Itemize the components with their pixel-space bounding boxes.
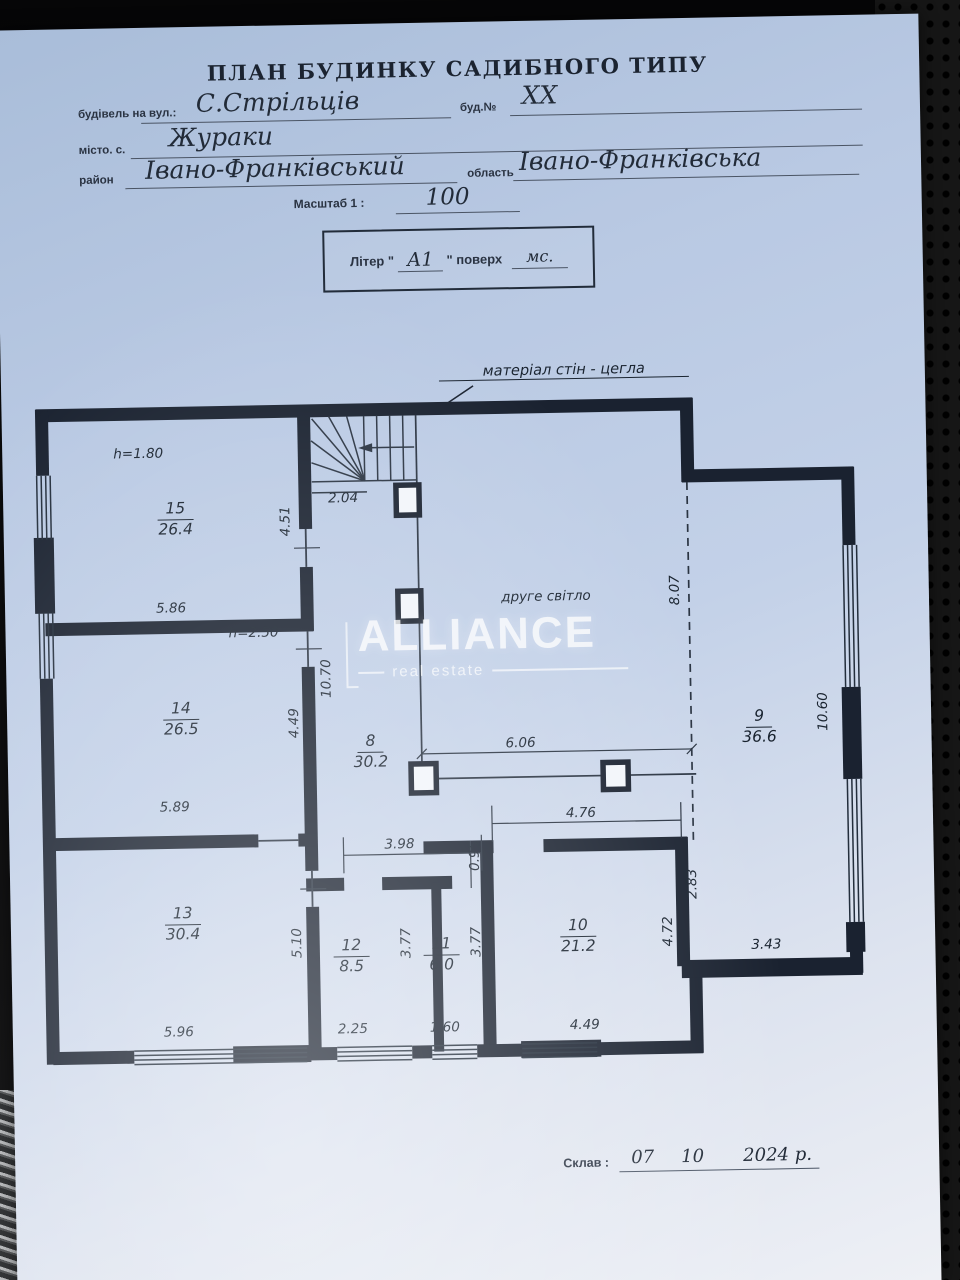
dimension-label: 5.89 xyxy=(160,799,190,816)
dimension-label: 10.60 xyxy=(815,692,832,731)
dimension-label: 5.96 xyxy=(164,1024,194,1041)
underline xyxy=(396,211,520,215)
room-label: 128.5 xyxy=(333,936,369,977)
dimension-label: 2.83 xyxy=(684,869,701,899)
dimension-label: друге світло xyxy=(501,588,591,606)
room-number: 13 xyxy=(165,904,201,926)
liter-value: А1 xyxy=(398,248,443,272)
dimension-label: h=2.50 xyxy=(228,624,278,641)
watermark-bracket xyxy=(345,622,358,688)
floor-plan: матеріал стін - цегла xyxy=(25,349,878,1070)
dimension-label: 2.04 xyxy=(328,490,358,507)
dimension-label: 4.76 xyxy=(566,805,596,822)
dimension-label: 10.70 xyxy=(318,659,335,698)
dimension-label: 3.77 xyxy=(468,927,485,957)
dimension-label: 4.72 xyxy=(660,916,677,946)
compiled-year: 2024 р. xyxy=(743,1144,812,1166)
underline xyxy=(141,117,451,124)
room-label: 1426.5 xyxy=(163,699,199,740)
dimension-label: 5.86 xyxy=(156,600,186,617)
page-title: ПЛАН БУДИНКУ САДИБНОГО ТИПУ xyxy=(0,48,919,90)
compiled-month: 10 xyxy=(681,1146,704,1167)
building-no-label: буд.№ xyxy=(460,101,497,114)
underline xyxy=(131,145,863,160)
compiled-label: Склав : xyxy=(563,1156,609,1171)
dimension-label: 6.06 xyxy=(505,735,535,752)
watermark-subtitle: real estate xyxy=(358,659,628,681)
compiled-day: 07 xyxy=(631,1147,654,1168)
liter-label: Літер " xyxy=(350,253,394,269)
plan-labels-layer: h=1.804.512.045.86h=2.5010.704.495.895.9… xyxy=(25,349,865,364)
room-number: 9 xyxy=(746,706,772,728)
room-number: 12 xyxy=(333,936,369,958)
room-area: 26.4 xyxy=(158,520,194,540)
dimension-label: 8.07 xyxy=(667,575,684,605)
room-number: 14 xyxy=(163,699,199,721)
dimension-label: 5.10 xyxy=(289,928,306,958)
room-label: 1330.4 xyxy=(165,904,201,945)
underline xyxy=(125,182,457,189)
underline xyxy=(619,1168,819,1173)
room-number: 11 xyxy=(423,934,459,956)
dimension-label: 3.77 xyxy=(398,928,415,958)
room-area: 36.6 xyxy=(742,728,777,748)
dimension-label: 2.25 xyxy=(338,1021,368,1038)
region-value: Івано-Франківська xyxy=(519,143,762,176)
underline xyxy=(510,109,862,117)
building-no-value: XX xyxy=(521,80,557,110)
room-label: 116.0 xyxy=(423,934,459,975)
liter-box: Літер " А1 " поверх мс. xyxy=(322,226,595,293)
room-number: 15 xyxy=(157,499,193,521)
district-value: Івано-Франківський xyxy=(145,151,405,185)
room-area: 30.2 xyxy=(354,753,389,773)
dimension-label: 4.51 xyxy=(277,506,294,536)
scale-label: Масштаб 1 : xyxy=(294,196,365,211)
dimension-label: 1.60 xyxy=(430,1019,460,1036)
wall-material-note: матеріал стін - цегла xyxy=(439,360,689,382)
photo-background: ПЛАН БУДИНКУ САДИБНОГО ТИПУ будівель на … xyxy=(0,0,960,1280)
underline xyxy=(513,174,859,182)
room-area: 6.0 xyxy=(424,956,460,976)
room-number: 10 xyxy=(560,916,596,938)
watermark-brand: ALLIANCE xyxy=(357,607,628,662)
dimension-label: 4.49 xyxy=(286,708,303,738)
dimension-label: 4.49 xyxy=(570,1017,600,1034)
city-value: Жураки xyxy=(168,121,273,152)
dimension-label: h=1.80 xyxy=(113,446,163,463)
room-area: 21.2 xyxy=(560,937,596,957)
room-label: 936.6 xyxy=(742,706,777,747)
region-label: область xyxy=(467,167,514,180)
scale-value: 100 xyxy=(425,184,469,211)
alliance-watermark: ALLIANCE real estate xyxy=(357,607,628,681)
liter-floor-value: мс. xyxy=(512,246,568,269)
city-label: місто. с. xyxy=(79,144,126,157)
dimension-label: 0.95 xyxy=(466,841,483,871)
district-label: район xyxy=(79,174,114,187)
room-label: 1021.2 xyxy=(560,916,596,957)
room-area: 8.5 xyxy=(334,957,370,977)
street-value: С.Стрільців xyxy=(196,86,360,118)
dimension-label: 3.98 xyxy=(384,836,414,853)
paper-sheet: ПЛАН БУДИНКУ САДИБНОГО ТИПУ будівель на … xyxy=(0,14,942,1280)
room-area: 30.4 xyxy=(165,925,201,945)
room-number: 8 xyxy=(357,732,383,754)
dimension-label: 3.43 xyxy=(751,936,781,953)
liter-floor-label: " поверх xyxy=(446,251,502,267)
floor-plan-drawing xyxy=(25,349,878,1070)
street-label: будівель на вул.: xyxy=(78,107,177,121)
room-area: 26.5 xyxy=(163,720,199,740)
room-label: 830.2 xyxy=(353,731,388,772)
room-label: 1526.4 xyxy=(157,499,193,540)
